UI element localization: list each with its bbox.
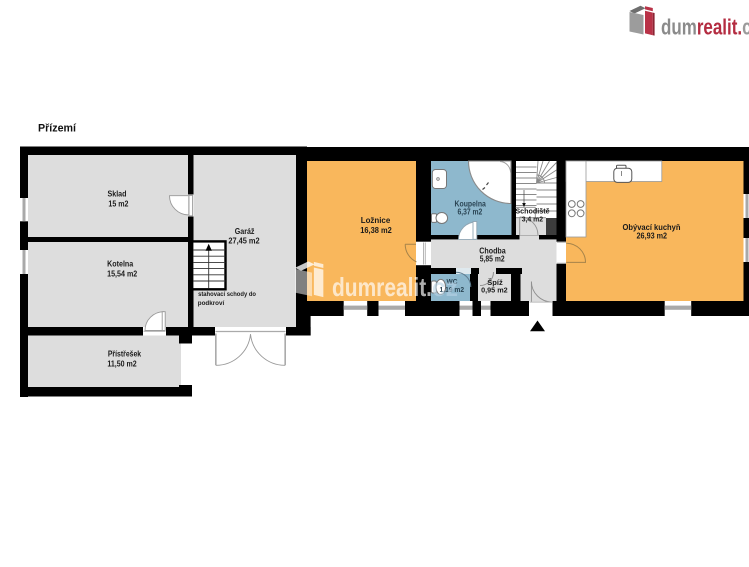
svg-text:15 m2: 15 m2 — [108, 199, 128, 208]
svg-text:cz: cz — [432, 272, 458, 302]
svg-text:15,54 m2: 15,54 m2 — [107, 270, 137, 279]
svg-text:0,95 m2: 0,95 m2 — [481, 285, 508, 294]
svg-text:3,4 m2: 3,4 m2 — [522, 215, 543, 224]
svg-text:Garáž: Garáž — [235, 227, 255, 236]
svg-text:11,50 m2: 11,50 m2 — [107, 359, 137, 368]
svg-text:26,93 m2: 26,93 m2 — [637, 232, 668, 241]
svg-text:Přístřešek: Přístřešek — [108, 349, 142, 358]
svg-text:dumrealit.cz: dumrealit.cz — [661, 14, 749, 39]
svg-text:16,38 m2: 16,38 m2 — [360, 226, 392, 235]
svg-text:podkroví: podkroví — [198, 300, 225, 307]
svg-text:stahovací schody do: stahovací schody do — [198, 291, 256, 298]
svg-text:27,45 m2: 27,45 m2 — [228, 236, 260, 245]
svg-text:Přízemí: Přízemí — [38, 123, 77, 135]
svg-text:5,85 m2: 5,85 m2 — [480, 255, 505, 264]
svg-text:Kotelna: Kotelna — [107, 260, 133, 269]
svg-text:Sklad: Sklad — [108, 189, 127, 198]
svg-text:6,37 m2: 6,37 m2 — [457, 207, 482, 216]
svg-text:Ložnice: Ložnice — [361, 216, 391, 225]
svg-text:dumrealit.: dumrealit. — [332, 272, 432, 302]
